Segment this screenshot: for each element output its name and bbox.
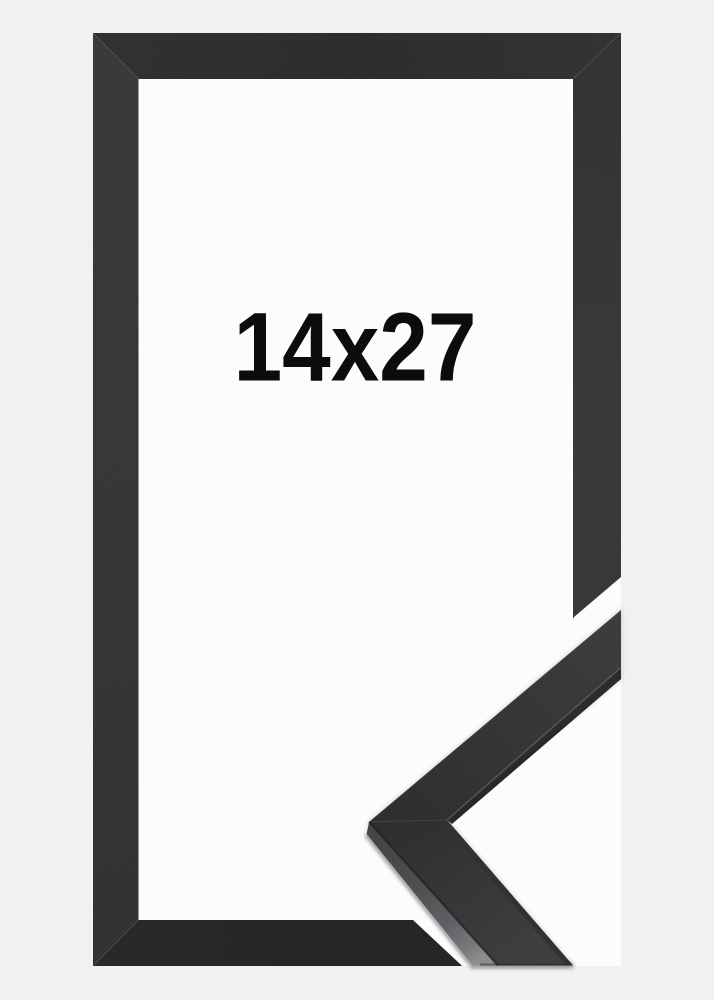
svg-text:14x27: 14x27 — [234, 292, 477, 401]
